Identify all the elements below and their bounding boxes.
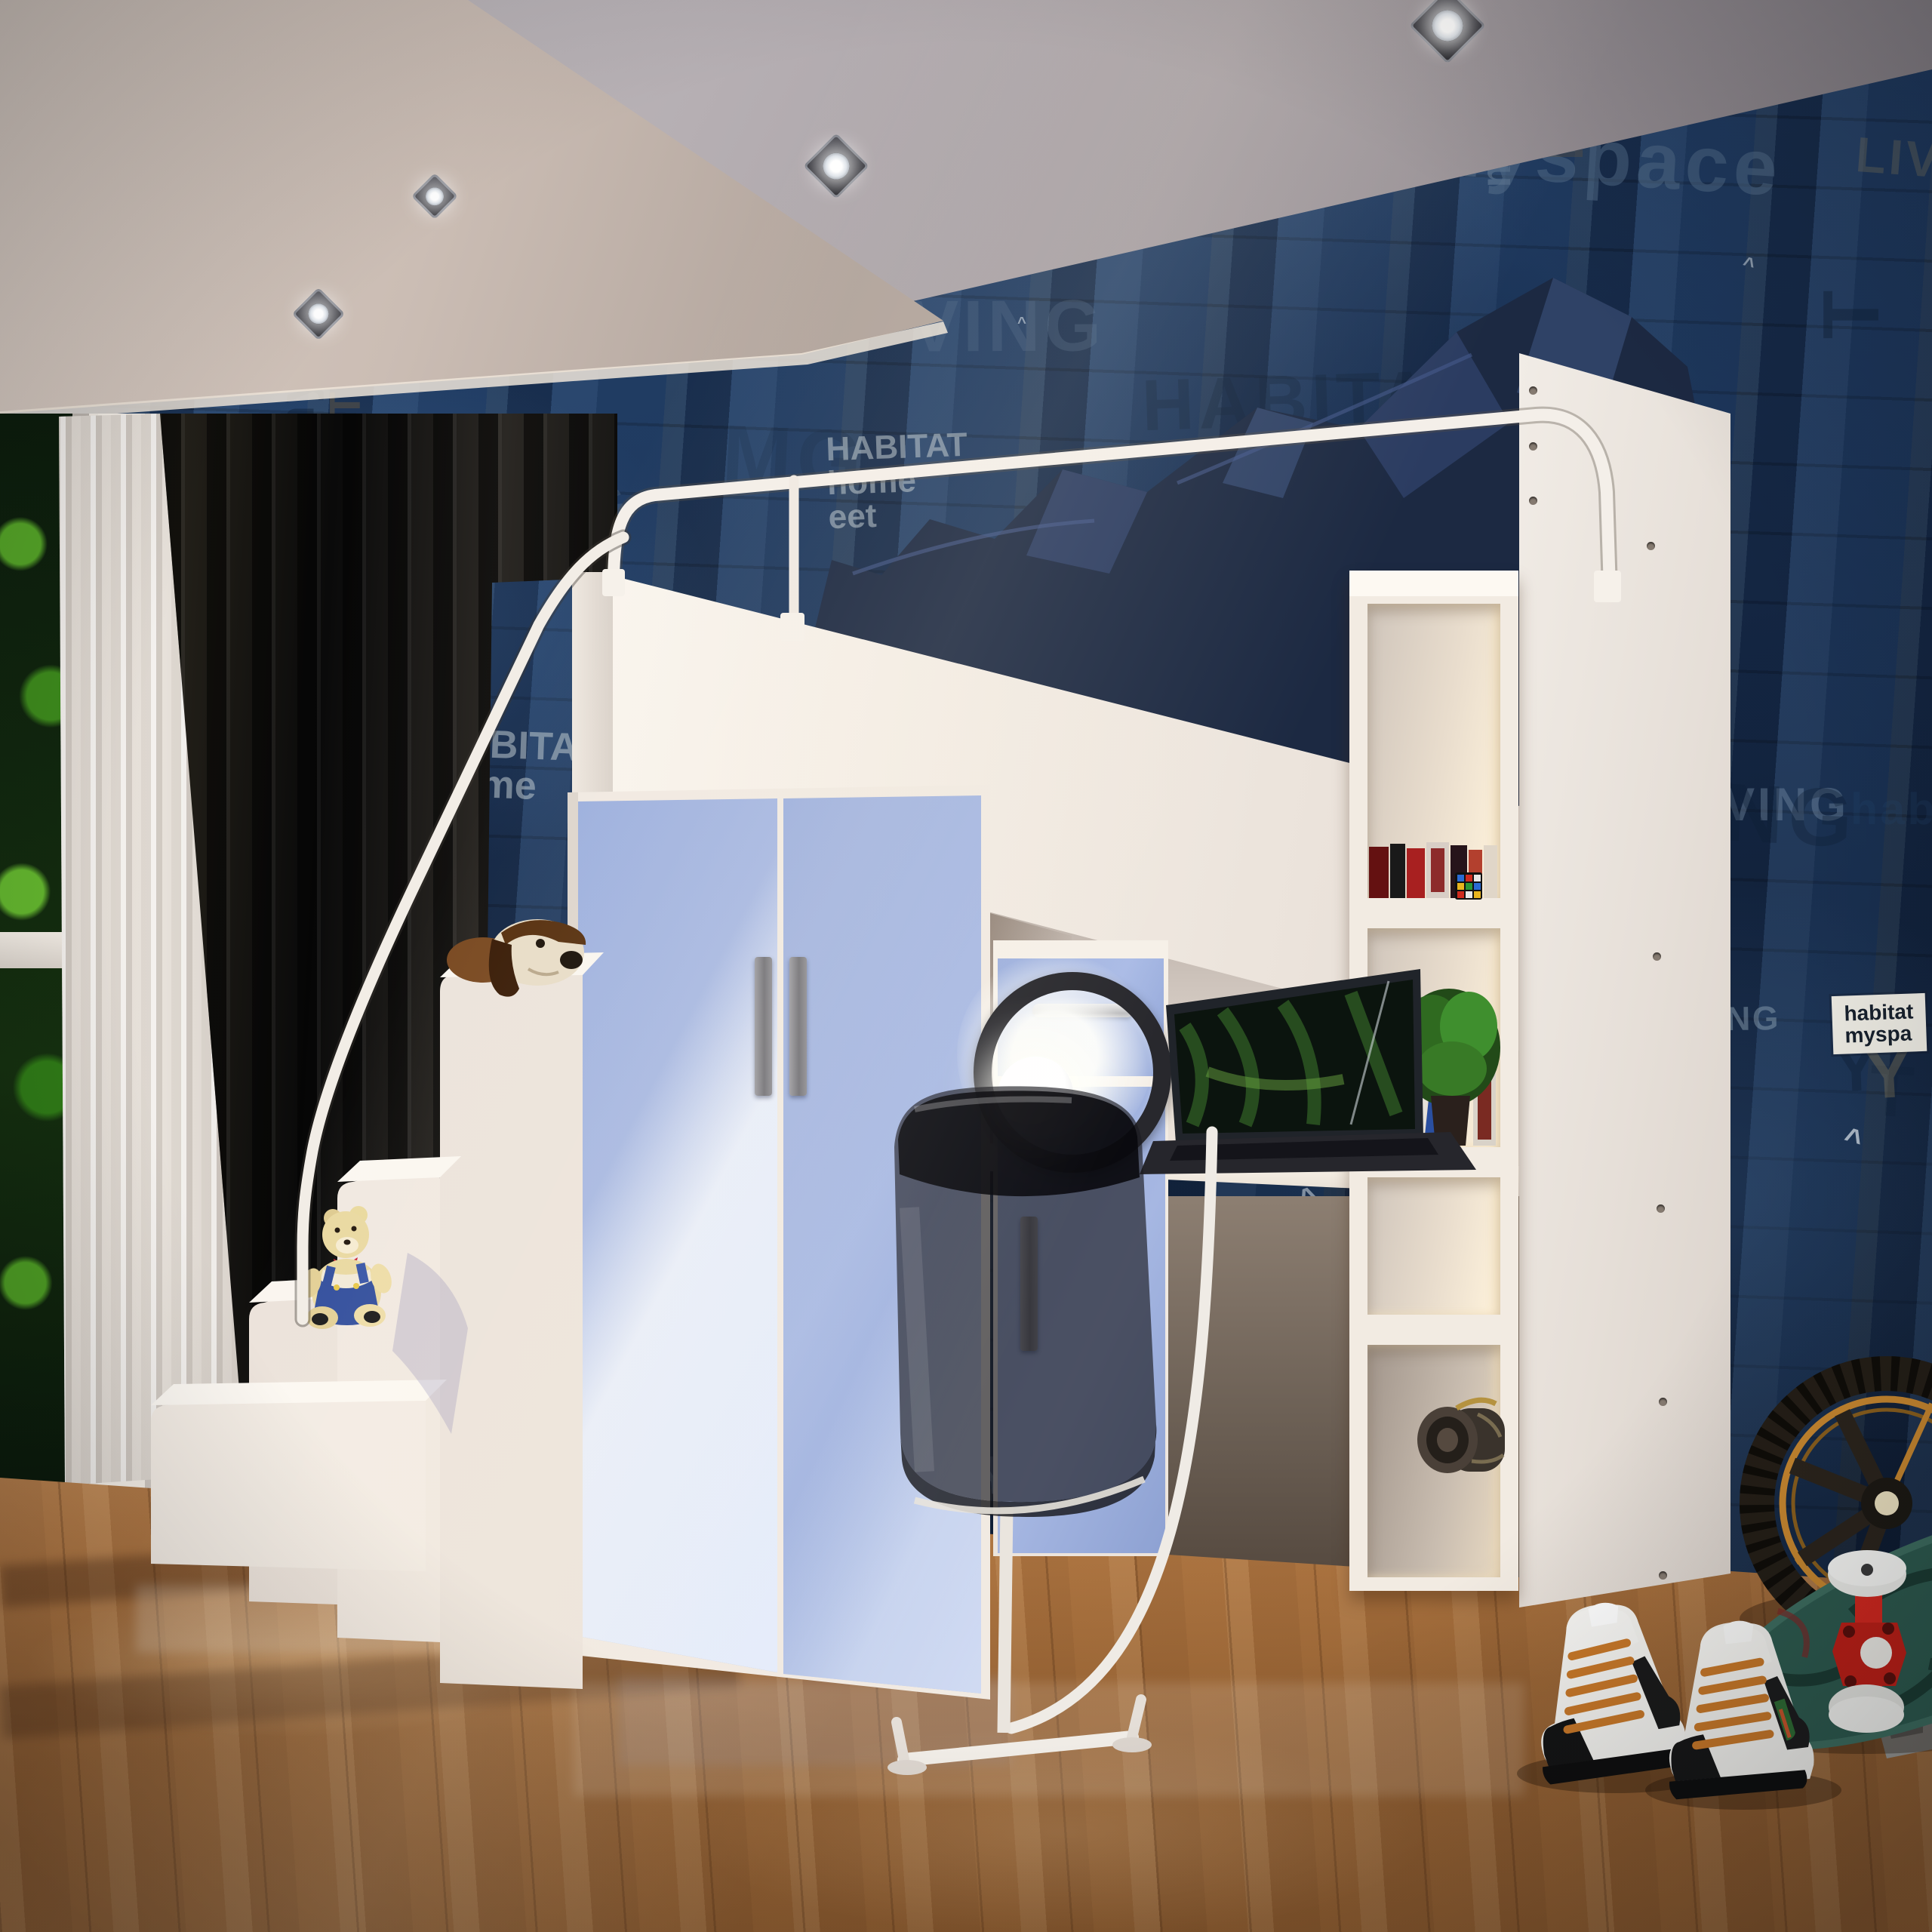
floor-objects-layer — [0, 0, 1932, 1932]
sneaker-left — [1526, 1595, 1689, 1785]
kids-room-render: mymyhabitatmyspacehabitateetMGhomeHABITA… — [0, 0, 1932, 1932]
